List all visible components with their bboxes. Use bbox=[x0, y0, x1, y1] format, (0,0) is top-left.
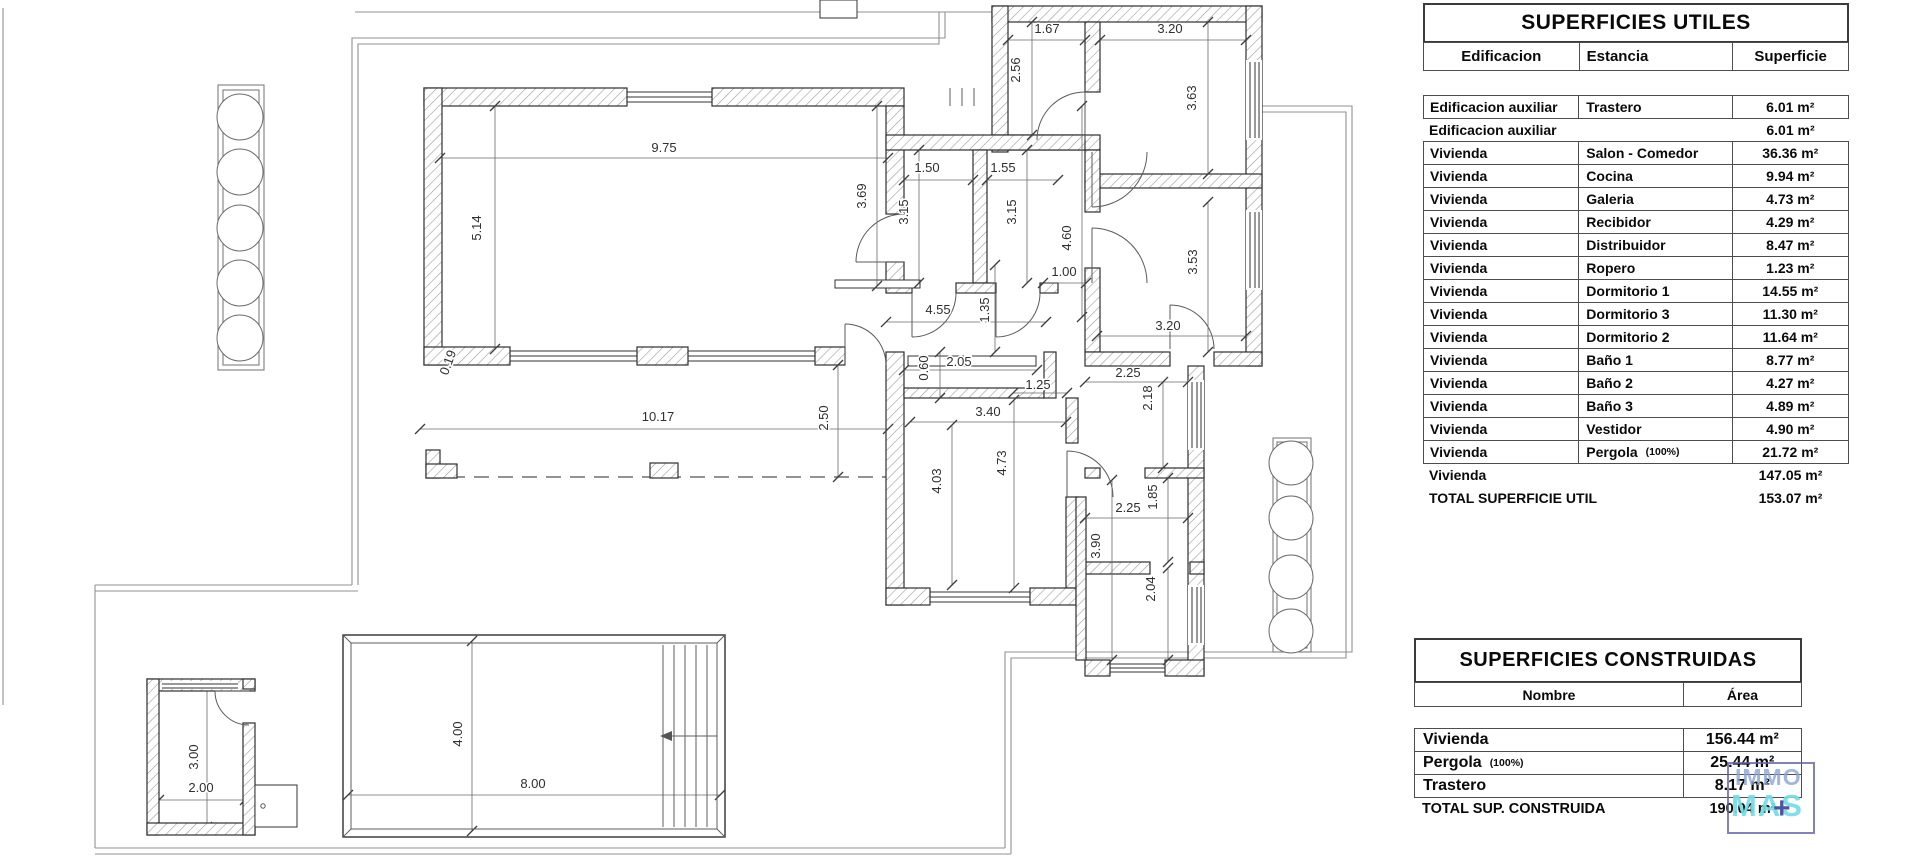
cell-superficie-text: 4.29 m² bbox=[1766, 214, 1814, 230]
total-label: TOTAL SUP. CONSTRUIDA bbox=[1414, 797, 1683, 821]
dimension-label: 3.69 bbox=[854, 183, 869, 208]
utiles-row: ViviendaRecibidor4.29 m² bbox=[1423, 210, 1849, 234]
cell-edificacion: Vivienda bbox=[1424, 395, 1578, 417]
cell-area-text: 156.44 m² bbox=[1706, 731, 1779, 749]
watermark-plus-icon: + bbox=[1773, 792, 1791, 826]
dimension-label: 4.55 bbox=[925, 302, 950, 317]
utiles-table-title: SUPERFICIES UTILES bbox=[1423, 3, 1849, 43]
cell-estancia: Dormitorio 3 bbox=[1578, 303, 1731, 325]
cell-edificacion: Vivienda bbox=[1424, 142, 1578, 164]
floorplan-page: { "plan": { "dims": [ {"t":"9.75","x":66… bbox=[0, 0, 1920, 860]
utiles-row: ViviendaBaño 24.27 m² bbox=[1423, 371, 1849, 395]
utiles-row: ViviendaDormitorio 211.64 m² bbox=[1423, 325, 1849, 349]
cell-superficie-text: 4.90 m² bbox=[1766, 421, 1814, 437]
cell-estancia: Baño 1 bbox=[1578, 349, 1731, 371]
cell-edificacion-text: Vivienda bbox=[1430, 375, 1487, 391]
cell-superficie: 11.30 m² bbox=[1732, 303, 1848, 325]
cell-superficie: 21.72 m² bbox=[1732, 441, 1848, 463]
cell-edificacion: Vivienda bbox=[1424, 303, 1578, 325]
utiles-row: ViviendaRopero1.23 m² bbox=[1423, 256, 1849, 280]
cell-edificacion-text: Vivienda bbox=[1430, 214, 1487, 230]
utiles-row: ViviendaSalon - Comedor36.36 m² bbox=[1423, 141, 1849, 165]
utiles-row: ViviendaBaño 18.77 m² bbox=[1423, 348, 1849, 372]
percent-note: (100%) bbox=[1490, 757, 1524, 769]
utiles-row: Edificacion auxiliarTrastero6.01 m² bbox=[1423, 95, 1849, 119]
dimension-label: 3.20 bbox=[1155, 318, 1180, 333]
total-label: Vivienda bbox=[1423, 463, 1732, 487]
cell-superficie: 6.01 m² bbox=[1732, 96, 1848, 118]
cell-superficie: 4.27 m² bbox=[1732, 372, 1848, 394]
planter-right bbox=[1269, 438, 1313, 653]
cell-estancia: Baño 2 bbox=[1578, 372, 1731, 394]
cell-superficie-text: 4.73 m² bbox=[1766, 191, 1814, 207]
cell-edificacion-text: Vivienda bbox=[1430, 352, 1487, 368]
cell-edificacion: Vivienda bbox=[1424, 165, 1578, 187]
cell-estancia-text: Recibidor bbox=[1586, 214, 1651, 230]
cell-edificacion: Vivienda bbox=[1424, 441, 1578, 463]
cell-superficie-text: 6.01 m² bbox=[1766, 99, 1814, 115]
cell-superficie: 11.64 m² bbox=[1732, 326, 1848, 348]
cell-edificacion-text: Vivienda bbox=[1430, 145, 1487, 161]
cell-estancia-text: Cocina bbox=[1586, 168, 1633, 184]
cell-edificacion: Vivienda bbox=[1424, 326, 1578, 348]
cell-nombre: Trastero bbox=[1415, 775, 1683, 797]
cell-edificacion-text: Vivienda bbox=[1430, 237, 1487, 253]
cell-superficie-text: 11.30 m² bbox=[1763, 306, 1818, 322]
dimension-label: 10.17 bbox=[642, 409, 675, 424]
cell-estancia-text: Baño 1 bbox=[1586, 352, 1633, 368]
dimension-label: 8.00 bbox=[520, 776, 545, 791]
cell-edificacion: Vivienda bbox=[1424, 257, 1578, 279]
dimension-label: 1.00 bbox=[1051, 264, 1076, 279]
utiles-row: Edificacion auxiliar6.01 m² bbox=[1423, 118, 1849, 142]
dimension-label: 2.00 bbox=[188, 780, 213, 795]
cell-estancia-text: Galeria bbox=[1586, 191, 1633, 207]
cell-edificacion: Vivienda bbox=[1424, 418, 1578, 440]
cell-nombre-text: Pergola bbox=[1423, 754, 1482, 772]
cell-superficie-text: 21.72 m² bbox=[1762, 444, 1818, 460]
cell-edificacion: Vivienda bbox=[1424, 234, 1578, 256]
cell-edificacion-text: Vivienda bbox=[1430, 444, 1487, 460]
cell-edificacion: Vivienda bbox=[1424, 349, 1578, 371]
construidas-title-text: SUPERFICIES CONSTRUIDAS bbox=[1459, 649, 1756, 672]
dimension-label: 3.15 bbox=[1004, 199, 1019, 224]
column-header-edificacion: Edificacion bbox=[1424, 43, 1579, 70]
cell-superficie: 14.55 m² bbox=[1732, 280, 1848, 302]
total-label-text: Vivienda bbox=[1429, 467, 1486, 483]
construidas-row: Vivienda156.44 m² bbox=[1414, 728, 1802, 752]
planter-left bbox=[217, 85, 264, 370]
column-header-area: Área bbox=[1683, 683, 1801, 706]
cell-estancia: Trastero bbox=[1578, 96, 1731, 118]
porch-steps bbox=[950, 88, 974, 106]
dimension-label: 2.25 bbox=[1115, 500, 1140, 515]
cell-nombre: Pergola(100%) bbox=[1415, 752, 1683, 774]
utiles-row: ViviendaDormitorio 311.30 m² bbox=[1423, 302, 1849, 326]
cell-edificacion: Vivienda bbox=[1424, 188, 1578, 210]
utiles-row: ViviendaGaleria4.73 m² bbox=[1423, 187, 1849, 211]
dimension-label: 1.55 bbox=[990, 160, 1015, 175]
cell-estancia-text: Pergola bbox=[1586, 444, 1637, 460]
cell-superficie: 4.90 m² bbox=[1732, 418, 1848, 440]
cell-superficie-text: 4.27 m² bbox=[1766, 375, 1814, 391]
utiles-row: ViviendaVestidor4.90 m² bbox=[1423, 417, 1849, 441]
column-header-estancia: Estancia bbox=[1579, 43, 1733, 70]
total-value-text: 147.05 m² bbox=[1759, 467, 1823, 483]
walls bbox=[424, 0, 1262, 676]
total-value: 153.07 m² bbox=[1732, 486, 1849, 510]
cell-edificacion-text: Vivienda bbox=[1430, 306, 1487, 322]
cell-edificacion: Vivienda bbox=[1424, 211, 1578, 233]
dimension-label: 3.15 bbox=[896, 199, 911, 224]
cell-estancia: Dormitorio 2 bbox=[1578, 326, 1731, 348]
dimension-label: 3.00 bbox=[186, 744, 201, 769]
dimension-label: 3.63 bbox=[1184, 85, 1199, 110]
dimension-label: 2.50 bbox=[816, 405, 831, 430]
dimension-label: 3.53 bbox=[1185, 249, 1200, 274]
cell-edificacion-text: Vivienda bbox=[1430, 168, 1487, 184]
trastero-building bbox=[147, 679, 297, 835]
cell-estancia-text: Dormitorio 3 bbox=[1586, 306, 1669, 322]
cell-superficie: 9.94 m² bbox=[1732, 165, 1848, 187]
pergola bbox=[426, 450, 890, 478]
percent-note: (100%) bbox=[1646, 446, 1680, 458]
cell-edificacion: Edificacion auxiliar bbox=[1424, 96, 1578, 118]
utiles-row: ViviendaCocina9.94 m² bbox=[1423, 164, 1849, 188]
cell-area: 156.44 m² bbox=[1683, 729, 1801, 751]
cell-superficie-text: 14.55 m² bbox=[1762, 283, 1818, 299]
cell-estancia-text: Salon - Comedor bbox=[1586, 145, 1698, 161]
cell-estancia: Ropero bbox=[1578, 257, 1731, 279]
cell-edificacion: Edificacion auxiliar bbox=[1423, 118, 1578, 142]
cell-edificacion-text: Vivienda bbox=[1430, 398, 1487, 414]
dimension-label: 1.25 bbox=[1025, 377, 1050, 392]
dimension-label: 2.04 bbox=[1143, 576, 1158, 601]
cell-estancia-text: Ropero bbox=[1586, 260, 1635, 276]
cell-estancia: Dormitorio 1 bbox=[1578, 280, 1731, 302]
cell-estancia bbox=[1578, 118, 1732, 142]
cell-superficie-text: 9.94 m² bbox=[1766, 168, 1814, 184]
cell-estancia-text: Trastero bbox=[1586, 99, 1641, 115]
cell-superficie: 8.77 m² bbox=[1732, 349, 1848, 371]
cell-superficie-text: 1.23 m² bbox=[1766, 260, 1814, 276]
cell-estancia-text: Vestidor bbox=[1586, 421, 1641, 437]
cell-estancia-text: Dormitorio 1 bbox=[1586, 283, 1669, 299]
pool bbox=[343, 635, 725, 837]
cell-superficie: 36.36 m² bbox=[1732, 142, 1848, 164]
cell-estancia: Salon - Comedor bbox=[1578, 142, 1731, 164]
cell-superficie-text: 8.77 m² bbox=[1766, 352, 1814, 368]
watermark-immo-text: IMMO bbox=[1735, 764, 1802, 791]
column-header-superficie: Superficie bbox=[1732, 43, 1848, 70]
dimension-label: 3.20 bbox=[1157, 21, 1182, 36]
cell-edificacion: Vivienda bbox=[1424, 280, 1578, 302]
cell-edificacion-text: Vivienda bbox=[1430, 421, 1487, 437]
dimension-label: 2.18 bbox=[1140, 385, 1155, 410]
dimension-label: 3.40 bbox=[975, 404, 1000, 419]
utiles-table-body: Edificacion auxiliarTrastero6.01 m²Edifi… bbox=[1423, 95, 1849, 510]
cell-estancia-text: Dormitorio 2 bbox=[1586, 329, 1669, 345]
dimension-label: 0.60 bbox=[916, 355, 931, 380]
column-header-nombre: Nombre bbox=[1415, 683, 1683, 706]
dimension-label: 4.73 bbox=[994, 450, 1009, 475]
cell-estancia-text: Baño 2 bbox=[1586, 375, 1633, 391]
dimension-label: 1.50 bbox=[914, 160, 939, 175]
construidas-table-title: SUPERFICIES CONSTRUIDAS bbox=[1414, 638, 1802, 683]
cell-estancia-text: Baño 3 bbox=[1586, 398, 1633, 414]
dimension-label: 1.67 bbox=[1034, 21, 1059, 36]
dimension-label: 1.35 bbox=[977, 297, 992, 322]
cell-estancia: Baño 3 bbox=[1578, 395, 1731, 417]
total-value-text: 153.07 m² bbox=[1759, 490, 1823, 506]
dimension-label: 2.56 bbox=[1008, 57, 1023, 82]
total-label-text: TOTAL SUPERFICIE UTIL bbox=[1429, 490, 1597, 506]
dimension-label: 2.25 bbox=[1115, 365, 1140, 380]
dimension-label: 2.05 bbox=[946, 354, 971, 369]
utiles-total-row: TOTAL SUPERFICIE UTIL153.07 m² bbox=[1423, 486, 1849, 510]
cell-edificacion-text: Vivienda bbox=[1430, 191, 1487, 207]
cell-superficie: 4.89 m² bbox=[1732, 395, 1848, 417]
cell-superficie-text: 6.01 m² bbox=[1766, 122, 1814, 138]
dimension-label: 4.03 bbox=[929, 468, 944, 493]
immomas-watermark: IMMO MAS + bbox=[1727, 762, 1815, 834]
dimension-label: 4.60 bbox=[1059, 225, 1074, 250]
watermark-mas-text: MAS bbox=[1731, 788, 1803, 824]
dimension-label: 5.14 bbox=[469, 215, 484, 240]
total-value: 147.05 m² bbox=[1732, 463, 1849, 487]
total-label-text: TOTAL SUP. CONSTRUIDA bbox=[1422, 801, 1605, 817]
utiles-row: ViviendaDormitorio 114.55 m² bbox=[1423, 279, 1849, 303]
pool-arrow bbox=[660, 731, 672, 741]
cell-nombre-text: Vivienda bbox=[1423, 731, 1489, 749]
cell-superficie: 6.01 m² bbox=[1732, 118, 1849, 142]
cell-nombre-text: Trastero bbox=[1423, 777, 1486, 795]
cell-estancia: Galeria bbox=[1578, 188, 1731, 210]
utiles-total-row: Vivienda147.05 m² bbox=[1423, 463, 1849, 487]
utiles-row: ViviendaDistribuidor8.47 m² bbox=[1423, 233, 1849, 257]
cell-estancia: Vestidor bbox=[1578, 418, 1731, 440]
cell-estancia: Pergola(100%) bbox=[1578, 441, 1731, 463]
cell-nombre: Vivienda bbox=[1415, 729, 1683, 751]
cell-edificacion-text: Edificacion auxiliar bbox=[1430, 99, 1558, 115]
utiles-title-text: SUPERFICIES UTILES bbox=[1521, 11, 1751, 35]
cell-edificacion-text: Edificacion auxiliar bbox=[1429, 122, 1557, 138]
cell-estancia: Distribuidor bbox=[1578, 234, 1731, 256]
cell-superficie: 4.29 m² bbox=[1732, 211, 1848, 233]
utiles-row: ViviendaBaño 34.89 m² bbox=[1423, 394, 1849, 418]
cell-superficie: 1.23 m² bbox=[1732, 257, 1848, 279]
total-label: TOTAL SUPERFICIE UTIL bbox=[1423, 486, 1732, 510]
superficies-utiles-table: SUPERFICIES UTILES Edificacion Estancia … bbox=[1423, 3, 1849, 510]
utiles-row: ViviendaPergola(100%)21.72 m² bbox=[1423, 440, 1849, 464]
cell-edificacion-text: Vivienda bbox=[1430, 329, 1487, 345]
cell-edificacion-text: Vivienda bbox=[1430, 283, 1487, 299]
dimension-label: 3.90 bbox=[1088, 533, 1103, 558]
cell-edificacion: Vivienda bbox=[1424, 372, 1578, 394]
dimension-label: 4.00 bbox=[450, 721, 465, 746]
cell-superficie-text: 36.36 m² bbox=[1762, 145, 1818, 161]
cell-superficie: 4.73 m² bbox=[1732, 188, 1848, 210]
cell-estancia-text: Distribuidor bbox=[1586, 237, 1665, 253]
utiles-table-header: Edificacion Estancia Superficie bbox=[1423, 42, 1849, 71]
cell-estancia: Recibidor bbox=[1578, 211, 1731, 233]
dimension-label: 9.75 bbox=[651, 140, 676, 155]
cell-edificacion-text: Vivienda bbox=[1430, 260, 1487, 276]
cell-superficie: 8.47 m² bbox=[1732, 234, 1848, 256]
site-boundary bbox=[3, 8, 1352, 854]
cell-superficie-text: 11.64 m² bbox=[1763, 329, 1818, 345]
cell-estancia: Cocina bbox=[1578, 165, 1731, 187]
construidas-table-header: Nombre Área bbox=[1414, 682, 1802, 707]
dimension-label: 1.85 bbox=[1145, 484, 1160, 509]
cell-superficie-text: 8.47 m² bbox=[1766, 237, 1814, 253]
cell-superficie-text: 4.89 m² bbox=[1766, 398, 1814, 414]
